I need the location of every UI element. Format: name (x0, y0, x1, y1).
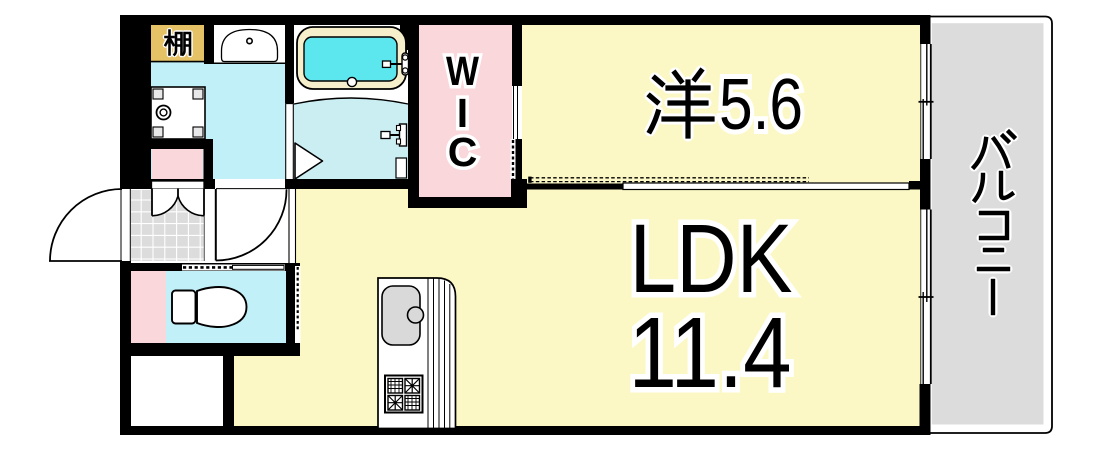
svg-text:W: W (446, 48, 479, 94)
svg-text:11.4: 11.4 (629, 297, 792, 409)
svg-text:5.6: 5.6 (719, 65, 803, 145)
svg-text:C: C (448, 129, 478, 175)
